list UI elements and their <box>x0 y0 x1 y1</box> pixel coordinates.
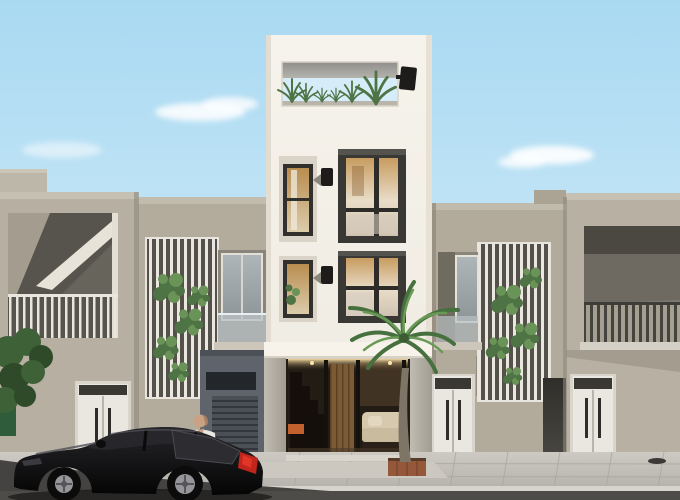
car-front-wheel <box>47 467 81 500</box>
entrance-glass-wall <box>286 359 410 455</box>
right-middle-house <box>431 190 567 482</box>
scene-svg <box>0 0 680 500</box>
glass-balustrade-left <box>218 314 266 342</box>
roof-terrace-opening <box>278 62 417 106</box>
entry-door-right-1 <box>431 374 475 460</box>
entry-door-right-2 <box>570 374 616 458</box>
pergola-beam <box>282 62 398 78</box>
drain <box>648 458 666 464</box>
vent-window <box>206 372 256 390</box>
far-right-house <box>563 193 680 482</box>
entrance-pillar-left <box>264 358 286 462</box>
third-floor-bay-window <box>338 149 406 243</box>
orange-chair <box>288 424 304 434</box>
interior-wood-door <box>330 364 354 452</box>
third-floor-niche-window <box>279 156 317 242</box>
car-mirror <box>96 440 106 448</box>
upper-window-left <box>214 250 266 350</box>
entrance-canopy <box>264 342 432 356</box>
render-canvas <box>0 0 680 500</box>
second-floor-niche-window <box>279 256 317 322</box>
balcony-railing-right <box>580 302 680 350</box>
entrance-pillar-right <box>410 358 432 462</box>
